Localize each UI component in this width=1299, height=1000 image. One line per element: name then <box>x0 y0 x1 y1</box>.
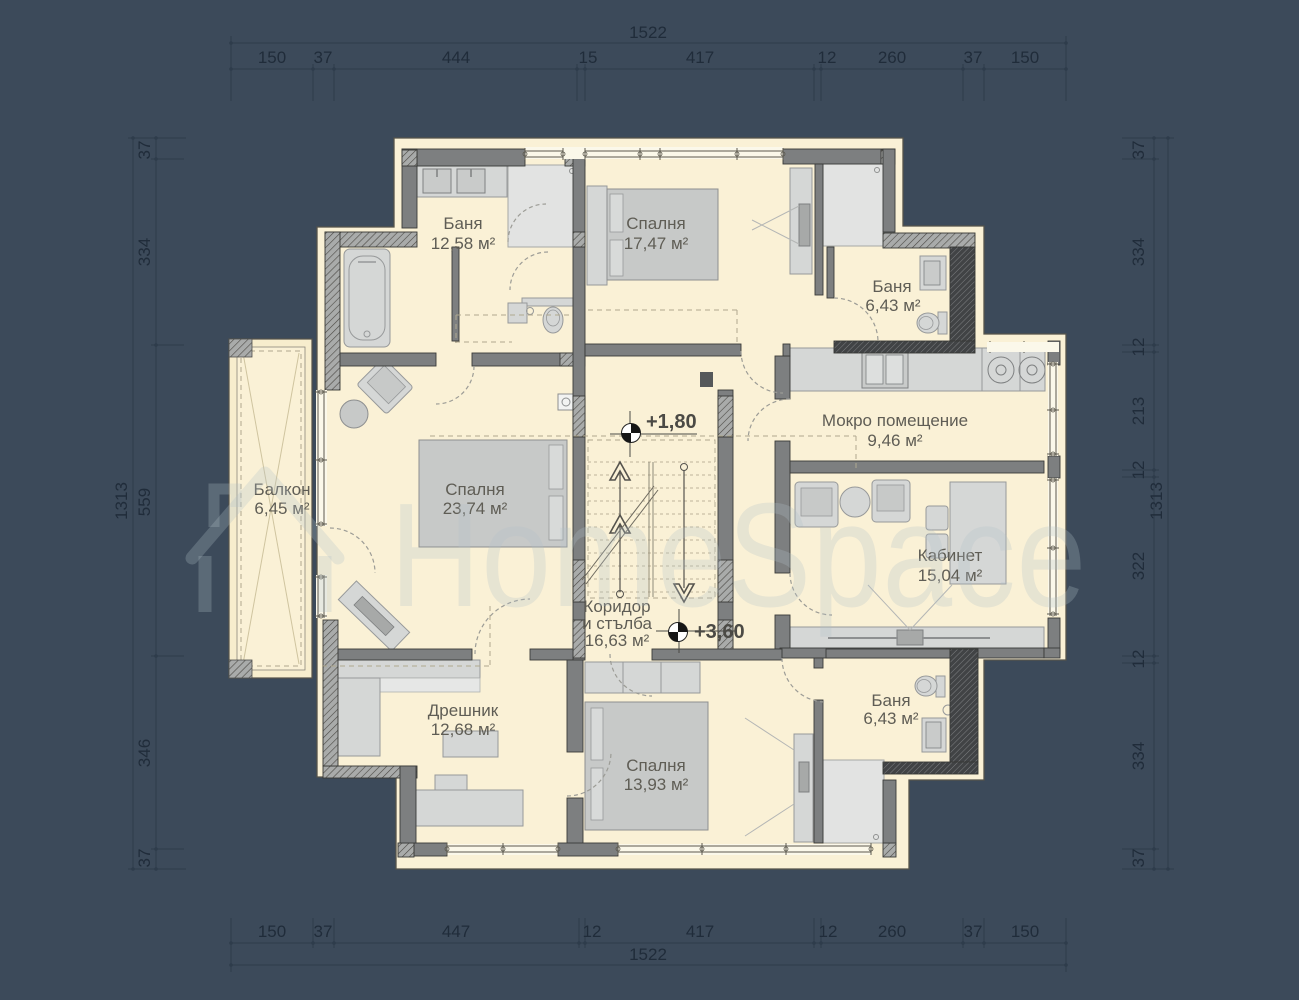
svg-text:17,47 м²: 17,47 м² <box>624 234 689 253</box>
svg-text:150: 150 <box>1011 922 1039 941</box>
svg-text:334: 334 <box>135 238 154 266</box>
svg-text:260: 260 <box>878 48 906 67</box>
svg-text:HomeSpace: HomeSpace <box>390 473 1087 638</box>
svg-text:37: 37 <box>135 849 154 868</box>
svg-text:12: 12 <box>583 922 602 941</box>
svg-text:150: 150 <box>258 922 286 941</box>
svg-text:12: 12 <box>1129 461 1148 480</box>
svg-text:Спалня: Спалня <box>626 214 685 233</box>
svg-text:Мокро помещение: Мокро помещение <box>822 411 968 430</box>
svg-text:213: 213 <box>1129 397 1148 425</box>
svg-text:37: 37 <box>314 922 333 941</box>
svg-text:Баня: Баня <box>443 214 482 233</box>
svg-text:37: 37 <box>135 141 154 160</box>
svg-text:12,58 м²: 12,58 м² <box>431 234 496 253</box>
svg-text:Баня: Баня <box>871 691 910 710</box>
svg-text:37: 37 <box>1129 849 1148 868</box>
svg-text:37: 37 <box>1129 141 1148 160</box>
svg-text:6,43 м²: 6,43 м² <box>863 709 918 728</box>
svg-text:37: 37 <box>964 48 983 67</box>
svg-text:444: 444 <box>442 48 470 67</box>
svg-text:1522: 1522 <box>629 945 667 964</box>
svg-text:1313: 1313 <box>112 482 131 520</box>
svg-text:15: 15 <box>579 48 598 67</box>
svg-text:334: 334 <box>1129 742 1148 770</box>
svg-text:12,68 м²: 12,68 м² <box>431 720 496 739</box>
svg-text:37: 37 <box>964 922 983 941</box>
svg-text:417: 417 <box>686 48 714 67</box>
svg-text:37: 37 <box>314 48 333 67</box>
svg-text:Баня: Баня <box>872 277 911 296</box>
svg-text:417: 417 <box>686 922 714 941</box>
svg-text:150: 150 <box>258 48 286 67</box>
svg-text:322: 322 <box>1129 552 1148 580</box>
svg-text:12: 12 <box>818 48 837 67</box>
svg-text:12: 12 <box>1129 338 1148 357</box>
svg-text:12: 12 <box>1129 650 1148 669</box>
svg-text:6,43 м²: 6,43 м² <box>865 296 920 315</box>
svg-text:Дрешник: Дрешник <box>428 701 499 720</box>
svg-text:12: 12 <box>819 922 838 941</box>
svg-text:150: 150 <box>1011 48 1039 67</box>
svg-text:447: 447 <box>442 922 470 941</box>
svg-text:559: 559 <box>135 488 154 516</box>
svg-text:260: 260 <box>878 922 906 941</box>
svg-text:+1,80: +1,80 <box>646 411 697 433</box>
svg-text:1313: 1313 <box>1147 482 1166 520</box>
svg-text:346: 346 <box>135 739 154 767</box>
svg-text:334: 334 <box>1129 238 1148 266</box>
svg-text:Спалня: Спалня <box>626 756 685 775</box>
svg-text:9,46 м²: 9,46 м² <box>867 431 922 450</box>
svg-text:1522: 1522 <box>629 23 667 42</box>
svg-text:13,93 м²: 13,93 м² <box>624 775 689 794</box>
